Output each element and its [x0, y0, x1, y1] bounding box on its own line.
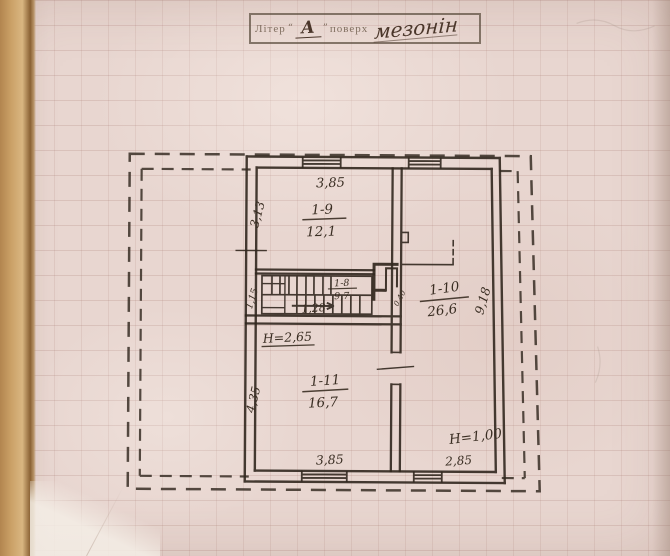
dim-room110-right: 9,18 — [471, 285, 493, 316]
dim-room19-left: 3,13 — [247, 199, 268, 229]
height-room111: H=2,65 — [261, 329, 312, 346]
dim-room19-top: 3,85 — [316, 176, 345, 192]
flue-block — [374, 264, 397, 299]
room-1-9-number: 1-9 — [311, 201, 334, 218]
room-1-10-number: 1-10 — [428, 279, 461, 299]
room-1-9-area: 12,1 — [306, 223, 337, 240]
room-1-8-area: 9,7 — [334, 291, 350, 302]
room-1-11-number: 1-11 — [309, 372, 340, 390]
dim-flue-opening: 0,40 — [392, 289, 408, 308]
interior-walls — [235, 167, 454, 471]
dim-room111-bottom: 3,85 — [315, 451, 344, 467]
scanned-floor-plan-photo: Літер “ А ” поверх мезонін — [0, 0, 670, 556]
faint-pencil-marks — [574, 20, 654, 383]
room-1-11-area: 16,7 — [308, 394, 339, 411]
floor-plan-drawing: 1-9 12,1 3,85 3,13 1-8 9,7 1,28 1,15 0,4… — [0, 0, 670, 556]
room-1-10-area: 26,6 — [425, 301, 458, 321]
room-1-8-number: 1-8 — [334, 278, 350, 290]
dim-stair-run: 1,28 — [301, 301, 326, 316]
dim-room110-bottom: 2,85 — [444, 453, 473, 469]
